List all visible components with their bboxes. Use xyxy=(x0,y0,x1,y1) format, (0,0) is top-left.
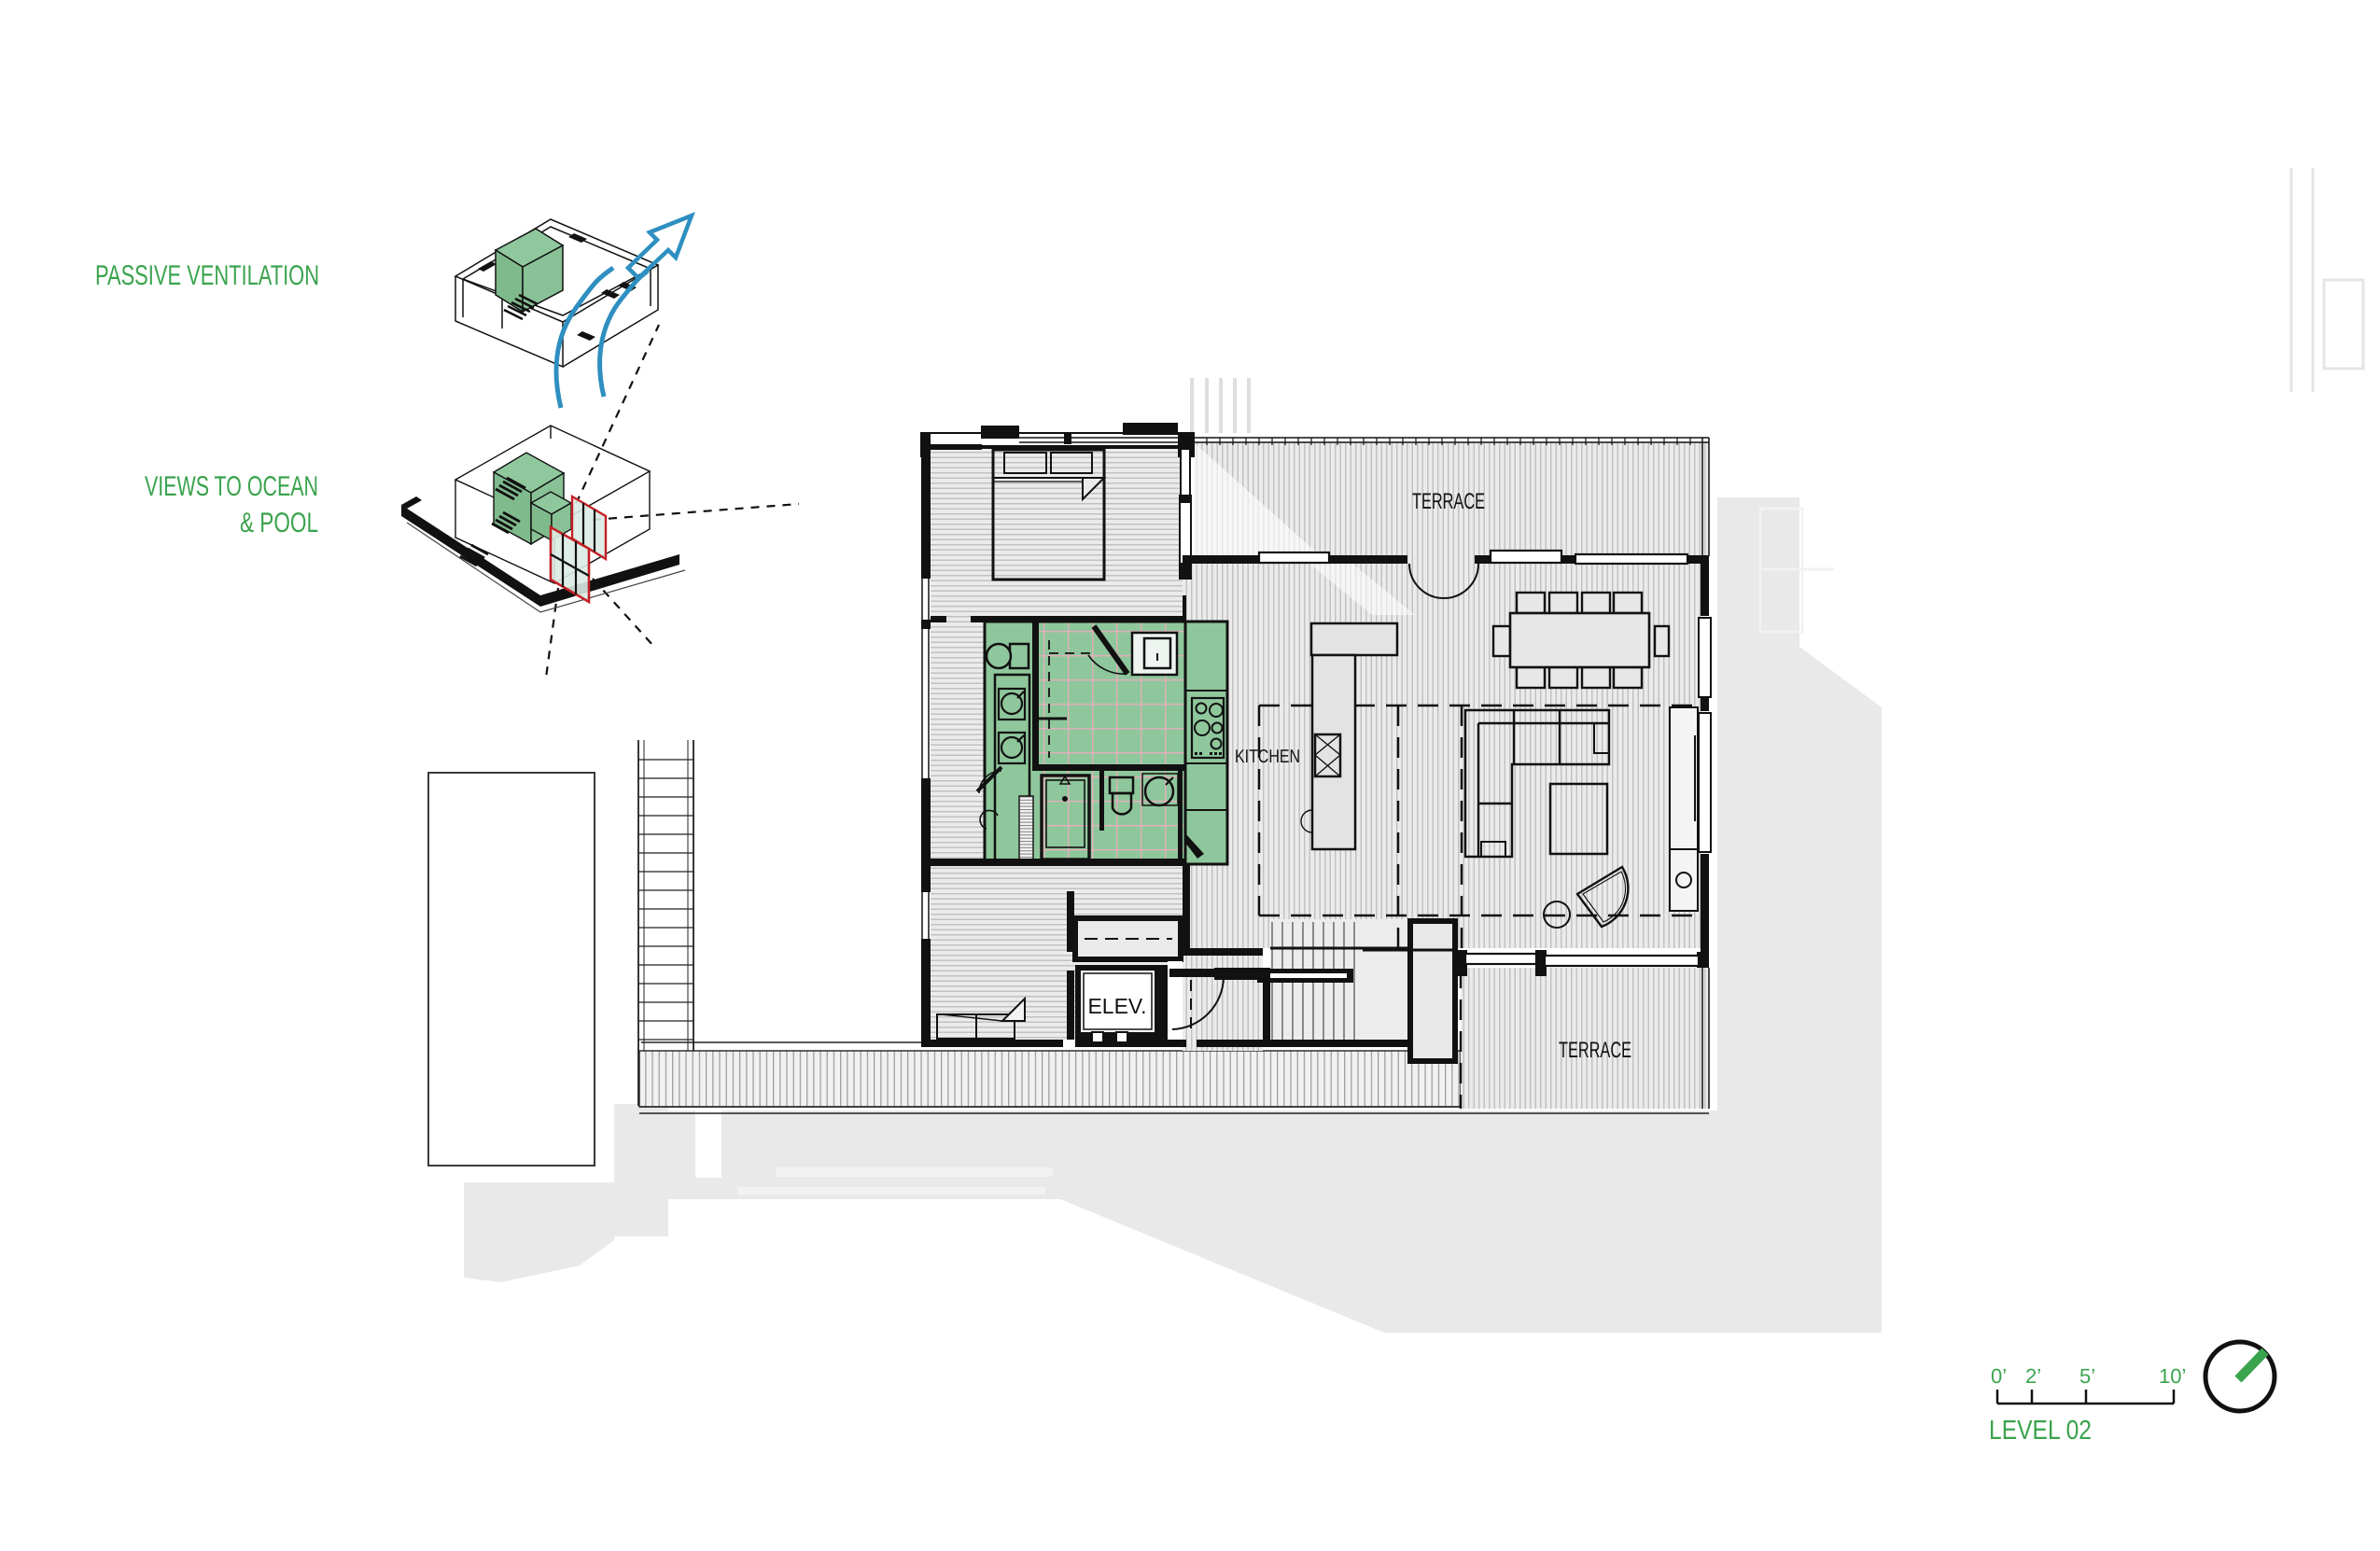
svg-text:PASSIVE VENTILATION: PASSIVE VENTILATION xyxy=(95,260,319,291)
svg-text:TERRACE: TERRACE xyxy=(1559,1038,1631,1063)
svg-text:2’: 2’ xyxy=(2025,1364,2041,1388)
svg-text:5’: 5’ xyxy=(2079,1364,2095,1388)
svg-text:0’: 0’ xyxy=(1991,1364,2007,1388)
svg-text:ELEV.: ELEV. xyxy=(1087,994,1146,1018)
svg-text:& POOL: & POOL xyxy=(240,508,318,538)
svg-text:LEVEL 02: LEVEL 02 xyxy=(1989,1416,2092,1446)
svg-text:KITCHEN: KITCHEN xyxy=(1235,747,1300,767)
svg-text:VIEWS TO OCEAN: VIEWS TO OCEAN xyxy=(145,471,318,502)
svg-text:TERRACE: TERRACE xyxy=(1412,489,1485,514)
svg-text:10’: 10’ xyxy=(2159,1364,2186,1388)
